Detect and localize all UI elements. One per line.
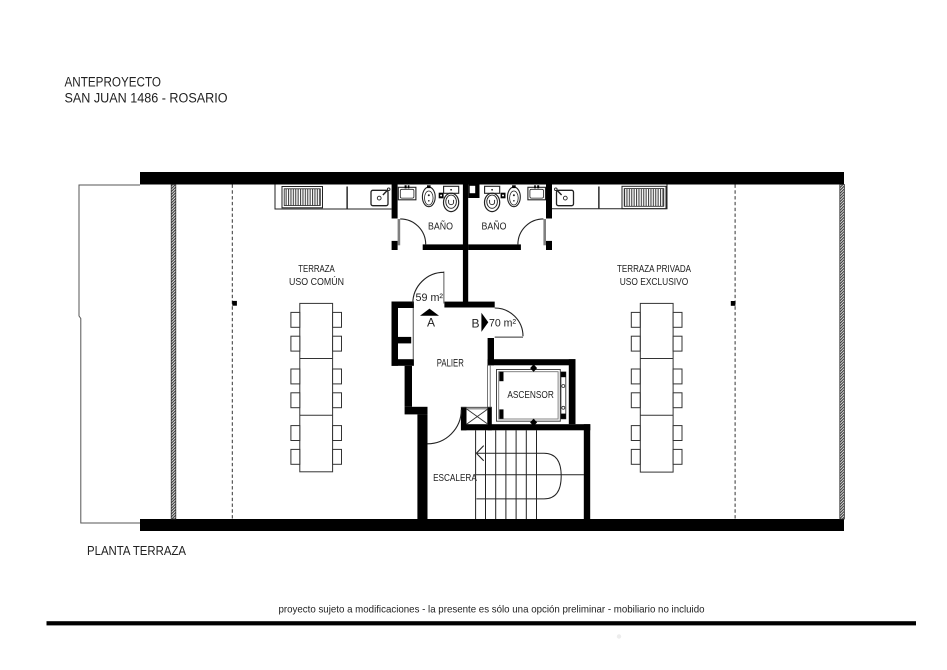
svg-text:TERRAZA PRIVADA: TERRAZA PRIVADA — [617, 263, 691, 275]
svg-text:ESCALERA: ESCALERA — [433, 473, 477, 484]
svg-text:SAN JUAN 1486 - ROSARIO: SAN JUAN 1486 - ROSARIO — [65, 91, 228, 106]
svg-text:USO COMÚN: USO COMÚN — [289, 275, 344, 288]
svg-text:PALIER: PALIER — [437, 357, 464, 369]
svg-text:70 m²: 70 m² — [489, 317, 516, 329]
svg-text:ASCENSOR: ASCENSOR — [507, 389, 554, 401]
svg-text:TERRAZA: TERRAZA — [298, 263, 335, 275]
svg-text:proyecto sujeto a modificacion: proyecto sujeto a modificaciones - la pr… — [279, 604, 705, 616]
svg-text:PLANTA TERRAZA: PLANTA TERRAZA — [87, 543, 186, 558]
svg-text:BAÑO: BAÑO — [482, 220, 507, 233]
svg-text:A: A — [427, 316, 435, 330]
svg-text:B: B — [471, 317, 479, 331]
svg-text:BAÑO: BAÑO — [428, 220, 453, 233]
svg-text:ANTEPROYECTO: ANTEPROYECTO — [65, 75, 162, 90]
svg-text:USO EXCLUSIVO: USO EXCLUSIVO — [620, 276, 689, 288]
svg-text:59 m²: 59 m² — [416, 292, 444, 304]
